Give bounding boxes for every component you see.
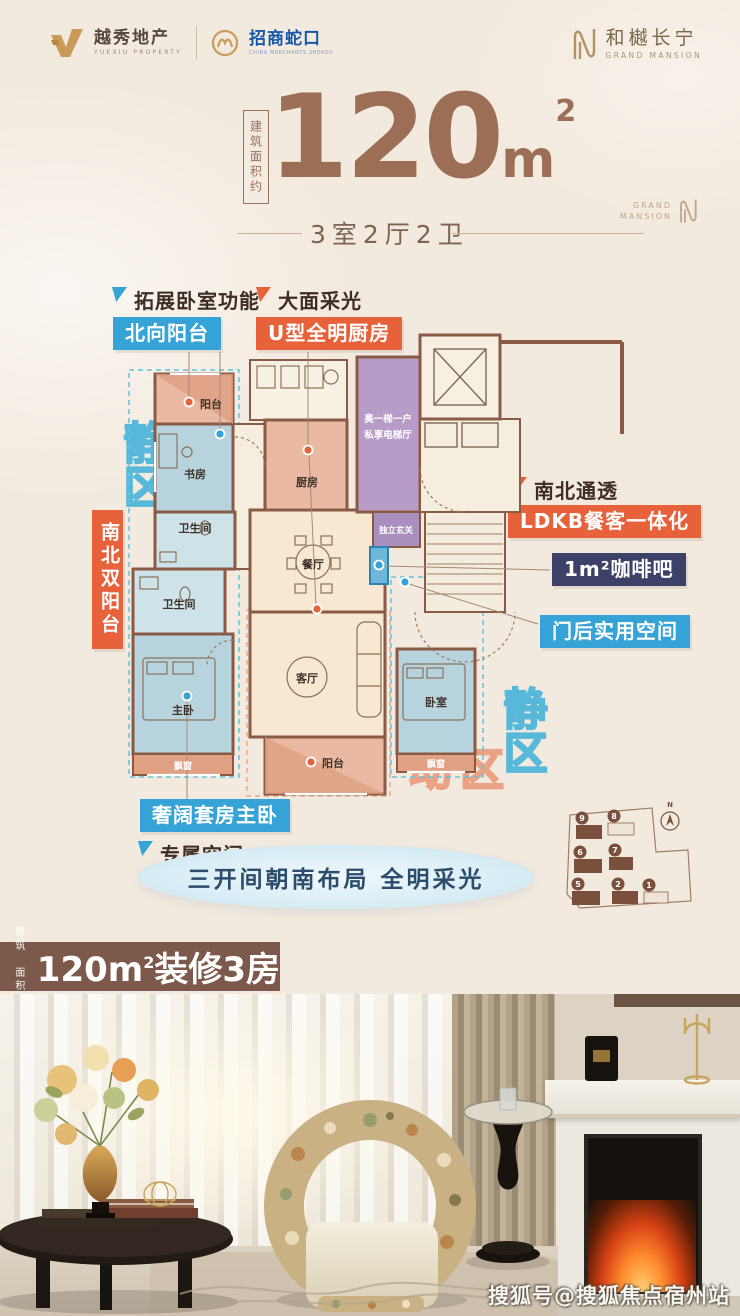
label-elevator-hall-1: 奥一梯一户	[363, 413, 412, 425]
project-name: 和樾长宁	[605, 28, 702, 49]
subtitle-line-left	[238, 233, 302, 234]
callout-title-expand-bedroom: 拓展卧室功能	[112, 285, 260, 314]
area-label-box: 建筑面积约	[243, 110, 269, 204]
yuexiu-logo-icon	[50, 28, 84, 58]
interior-photo: 搜狐号@搜狐焦点宿州站	[0, 994, 740, 1316]
corner-triangle-icon	[138, 841, 153, 856]
dot-study	[216, 430, 225, 439]
dot-bedroom	[401, 578, 410, 587]
slogan-ellipse: 三开间朝南布局 全明采光	[138, 845, 534, 909]
label-bay-bedroom: 飘窗	[427, 758, 445, 770]
grand-mansion-watermark: GRAND MANSION	[620, 198, 698, 224]
building-1: 1	[646, 881, 652, 890]
label-living: 客厅	[295, 671, 318, 685]
label-bath-1: 卫生间	[179, 521, 212, 535]
candelabra-icon	[685, 1014, 709, 1084]
building-8: 8	[611, 812, 617, 821]
label-master: 主卧	[172, 703, 194, 717]
layout-subtitle: 3室2厅2卫	[310, 215, 469, 251]
dot-dining	[313, 605, 322, 614]
callout-title-daylight: 大面采光	[256, 285, 362, 314]
room-kitchen	[265, 420, 347, 510]
yuexiu-name-en: YUEXIU PROPERTY	[94, 50, 182, 57]
shekou-name: 招商蛇口	[249, 30, 333, 49]
label-bay-master: 飘窗	[174, 760, 192, 772]
building-9: 9	[579, 814, 585, 823]
corner-triangle-icon	[112, 287, 127, 302]
watermark-monogram-icon	[678, 198, 698, 224]
label-foyer: 独立玄关	[378, 525, 414, 536]
dot-coffee-bar	[375, 561, 384, 570]
building-5: 5	[575, 880, 581, 889]
bottom-banner: 建 筑 面积约 120m2装修3房	[0, 942, 280, 991]
photo-furniture-art	[0, 994, 740, 1316]
label-bath-2: 卫生间	[163, 597, 196, 611]
corner-triangle-icon	[256, 287, 271, 302]
project-logo: 和樾长宁 GRAND MANSION	[571, 28, 702, 60]
entry-corridor	[420, 419, 520, 512]
compass-north-label: N	[667, 801, 673, 809]
building-6: 6	[577, 848, 583, 857]
label-study: 书房	[184, 467, 206, 481]
label-balcony-north: 阳台	[200, 397, 222, 411]
stairwell	[425, 512, 505, 612]
shekou-name-en: CHINA MERCHANTS SHEKOU	[249, 51, 333, 57]
pedestal-table	[464, 1088, 552, 1263]
grand-mansion-monogram-icon	[571, 28, 597, 60]
dot-kitchen	[304, 446, 313, 455]
subtitle-line-right	[452, 233, 644, 234]
yuexiu-name: 越秀地产	[94, 29, 182, 48]
flower-vase	[34, 1045, 159, 1218]
label-balcony-south: 阳台	[322, 756, 344, 770]
room-bath-1	[155, 512, 235, 569]
watermark-text: 搜狐号@搜狐焦点宿州站	[488, 1280, 730, 1310]
label-bedroom: 卧室	[425, 695, 447, 709]
label-elevator-hall-2: 私享电梯厅	[363, 429, 412, 441]
developer-logos: 越秀地产 YUEXIU PROPERTY 招商蛇口 CHINA MERCHANT…	[50, 26, 333, 60]
dot-master	[183, 692, 192, 701]
label-dining: 餐厅	[301, 557, 324, 571]
area-value: 120m2	[268, 80, 576, 196]
floor-plan: 阳台 书房 卫生间 卫生间 主卧 厨房 餐厅 客厅 阳台 卧室 飘窗 飘窗 独立…	[85, 322, 645, 814]
armchair	[280, 1112, 461, 1312]
building-7: 7	[612, 846, 618, 855]
poster-page: 越秀地产 YUEXIU PROPERTY 招商蛇口 CHINA MERCHANT…	[0, 0, 740, 1316]
dot-balcony-south	[307, 758, 316, 767]
dot-balcony-north	[185, 398, 194, 407]
label-kitchen: 厨房	[296, 475, 318, 489]
project-name-en: GRAND MANSION	[605, 52, 702, 60]
site-plan: 9 8 6 7 5 2 1 N	[548, 795, 698, 917]
banner-title: 120m2装修3房	[37, 942, 280, 991]
shekou-logo-icon	[211, 29, 239, 57]
logo-divider	[196, 26, 197, 60]
building-2: 2	[615, 880, 621, 889]
